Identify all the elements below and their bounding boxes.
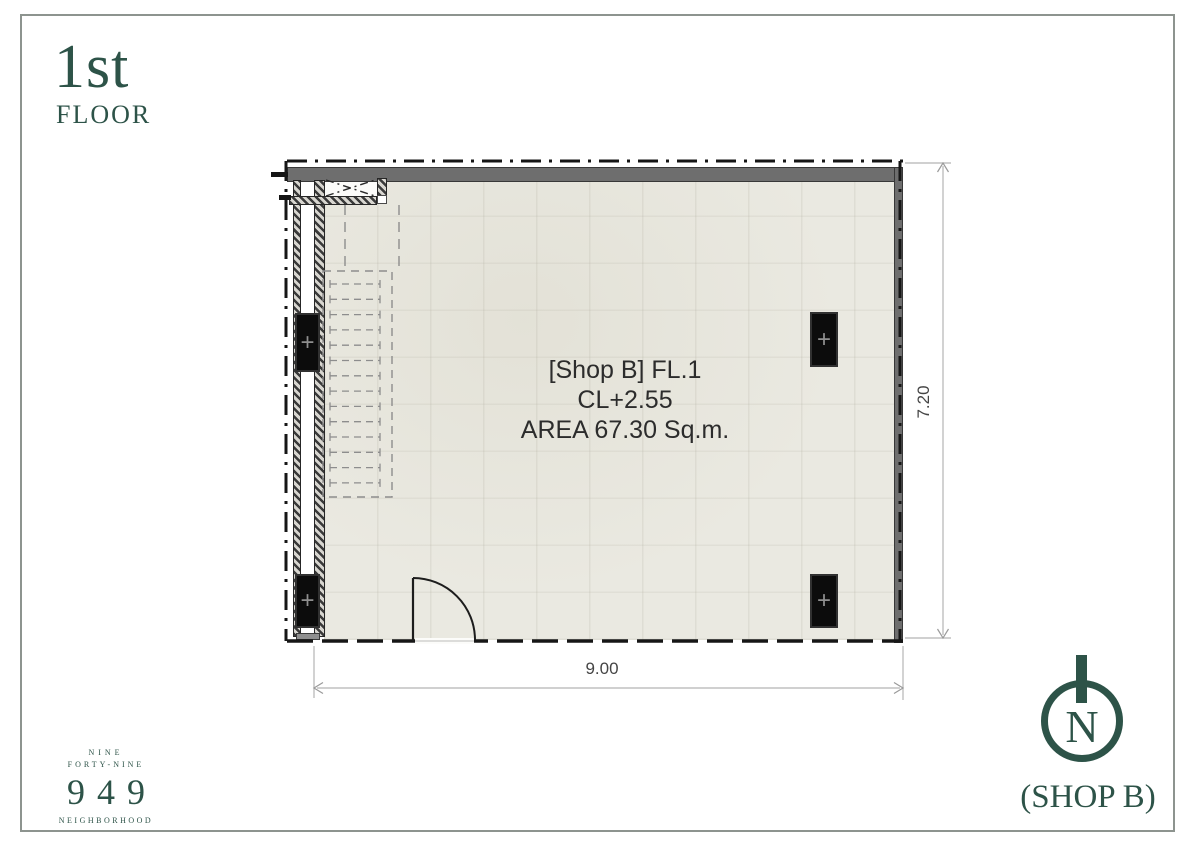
compass-north-letter: N xyxy=(1041,680,1123,762)
door-swing-arc xyxy=(413,578,475,640)
area-label: AREA 67.30 Sq.m. xyxy=(440,415,810,445)
brand-logo: NINE FORTY-NINE 949 NEIGHBORHOOD xyxy=(38,748,174,825)
room-label: [Shop B] FL.1 CL+2.55 AREA 67.30 Sq.m. xyxy=(440,355,810,445)
logo-line-nine: NINE xyxy=(38,748,174,757)
shop-caption: (SHOP B) xyxy=(1000,779,1176,816)
ceiling-label: CL+2.55 xyxy=(440,385,810,415)
logo-line-fortynine: FORTY-NINE xyxy=(38,760,174,769)
unit-label: [Shop B] FL.1 xyxy=(440,355,810,385)
north-compass-icon: N xyxy=(1036,650,1136,760)
stair-treads xyxy=(330,280,380,487)
width-dimension-label: 9.00 xyxy=(570,659,634,679)
logo-line-neighborhood: NEIGHBORHOOD xyxy=(38,816,174,825)
height-dimension-label: 7.20 xyxy=(914,372,934,432)
floor-plan-sheet: 1st FLOOR + + + + xyxy=(0,0,1200,849)
logo-number: 949 xyxy=(38,771,174,813)
stair-outline xyxy=(323,271,392,497)
